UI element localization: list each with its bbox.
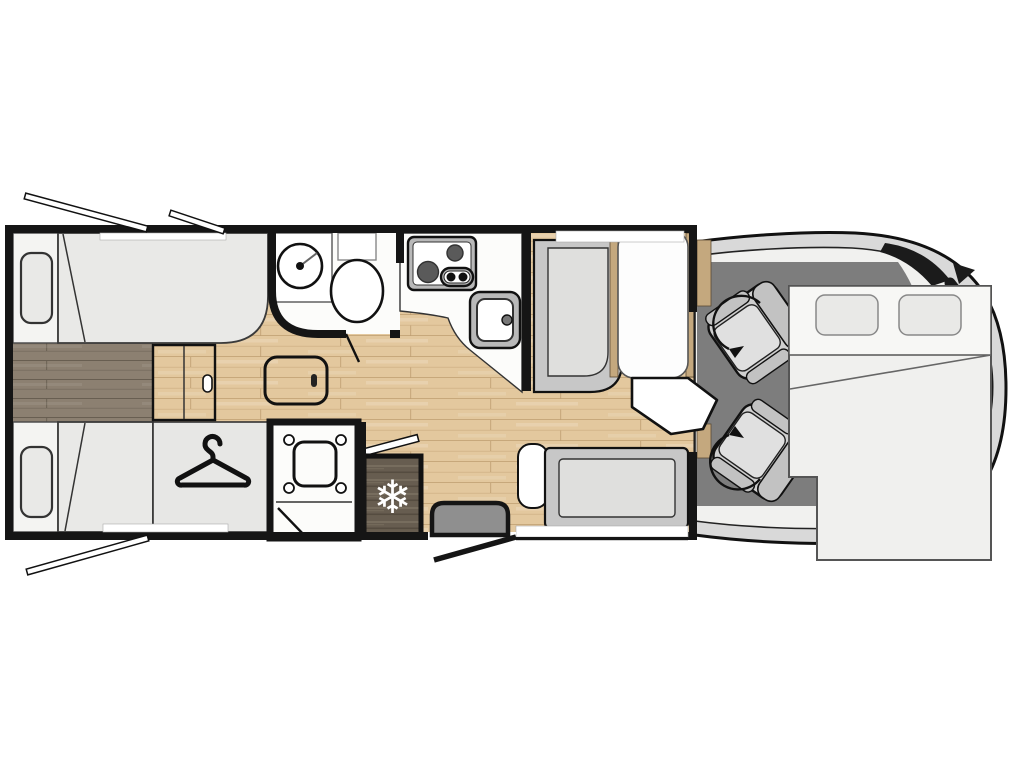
burner-large xyxy=(418,262,439,283)
rear-window-edge xyxy=(516,537,688,540)
bench-pillow-icon xyxy=(518,444,548,508)
bed-walkway-dark-floor xyxy=(13,343,153,422)
bench-cushion xyxy=(559,459,675,517)
wardrobe xyxy=(153,422,272,532)
wall-right-top xyxy=(689,225,697,312)
rear-bench-window xyxy=(516,526,688,537)
floorplan-svg: ❄ xyxy=(0,0,1024,768)
washbasin xyxy=(275,233,332,302)
kitchen-sink xyxy=(470,292,520,348)
pillow-icon xyxy=(21,447,52,517)
motorhome-floorplan: ❄ xyxy=(0,0,1024,768)
pillow-icon xyxy=(899,295,961,335)
open-window-pane-bottom xyxy=(26,535,149,575)
knob xyxy=(447,273,456,282)
sink-faucet xyxy=(502,315,512,325)
tray-corner xyxy=(336,483,346,493)
snowflake-icon: ❄ xyxy=(373,470,412,524)
twin-bed-top xyxy=(13,233,268,343)
cistern xyxy=(338,233,376,260)
drawer-handle xyxy=(203,375,212,392)
table-sideboard-left xyxy=(610,233,618,377)
drain xyxy=(296,262,304,270)
hob xyxy=(408,237,476,290)
wall-right-bottom xyxy=(689,452,697,540)
habitation-area: ❄ xyxy=(13,231,695,538)
twin-bed-bottom xyxy=(13,422,153,532)
mattress xyxy=(58,422,153,532)
bathroom xyxy=(272,233,400,334)
entry-step xyxy=(432,503,508,535)
side-table-top xyxy=(265,357,327,404)
toilet xyxy=(331,233,383,322)
side-table xyxy=(265,357,327,404)
tray-corner xyxy=(336,435,346,445)
pillow-icon xyxy=(21,253,52,323)
partition-shower-fridge xyxy=(356,422,366,540)
knob xyxy=(459,273,468,282)
pillow-icon xyxy=(816,295,878,335)
burner-small xyxy=(447,245,463,261)
partition-bathroom xyxy=(396,233,404,263)
partition-kitchen-dinette xyxy=(522,233,531,391)
table-handle xyxy=(311,374,317,387)
cab-shelf-top xyxy=(697,240,711,306)
bench-cushion xyxy=(548,248,608,376)
bed-step-unit xyxy=(153,345,215,420)
toilet-bowl xyxy=(331,260,383,322)
window-sill-top-left xyxy=(100,233,226,240)
dinette-table xyxy=(618,231,688,378)
mattress xyxy=(58,233,268,343)
shower xyxy=(270,422,358,538)
tray-corner xyxy=(284,483,294,493)
drop-down-bed xyxy=(789,286,991,560)
window-sill-bottom-left xyxy=(103,524,228,532)
wall-left xyxy=(5,225,13,540)
dinette-window xyxy=(556,231,684,242)
tray-corner xyxy=(284,435,294,445)
